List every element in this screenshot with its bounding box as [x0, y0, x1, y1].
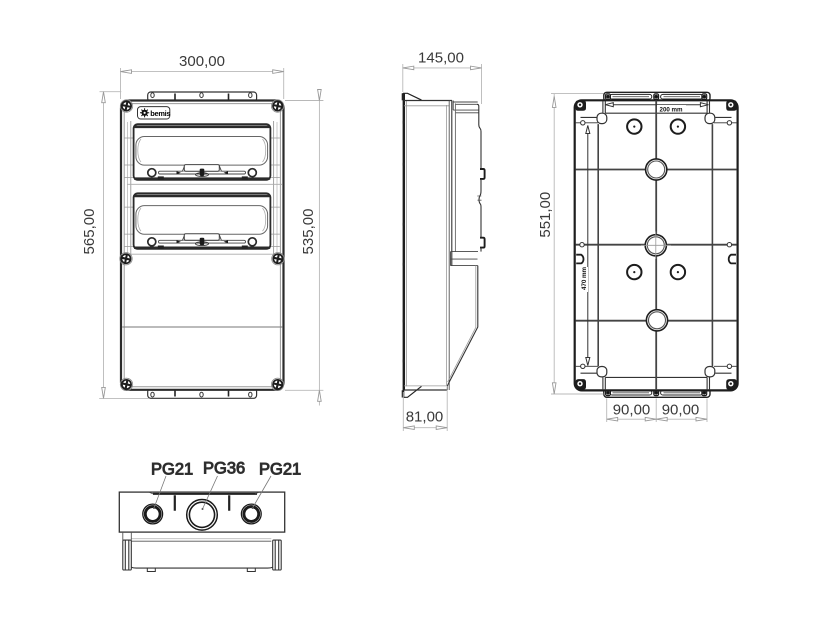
- svg-text:470 mm: 470 mm: [581, 266, 588, 290]
- svg-text:565,00: 565,00: [81, 209, 98, 255]
- svg-text:200 mm: 200 mm: [660, 106, 684, 113]
- svg-text:PG36: PG36: [203, 460, 245, 478]
- svg-text:PG21: PG21: [151, 461, 193, 479]
- svg-text:81,00: 81,00: [406, 409, 444, 426]
- svg-text:bemis: bemis: [150, 109, 170, 118]
- svg-text:PG21: PG21: [259, 461, 301, 479]
- svg-text:551,00: 551,00: [537, 192, 554, 238]
- svg-text:300,00: 300,00: [179, 53, 225, 70]
- svg-text:90,00: 90,00: [662, 402, 700, 419]
- svg-text:535,00: 535,00: [300, 209, 317, 255]
- svg-text:145,00: 145,00: [418, 50, 464, 67]
- svg-text:90,00: 90,00: [613, 402, 651, 419]
